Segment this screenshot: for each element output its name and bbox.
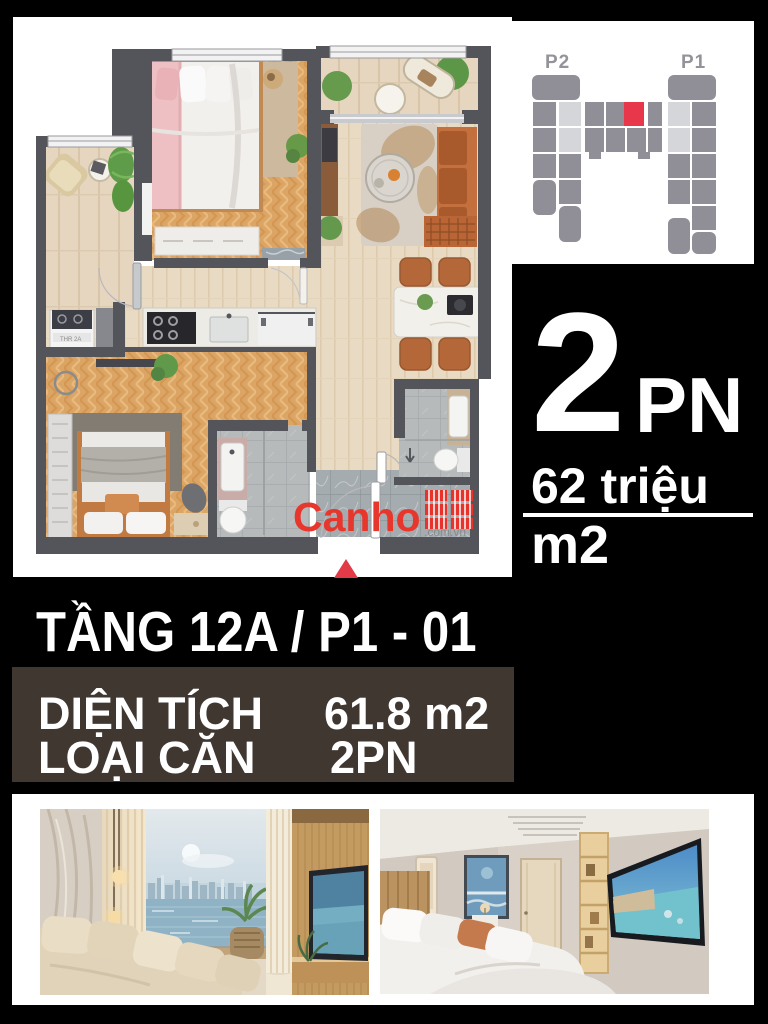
svg-text:Canho: Canho — [293, 494, 421, 540]
svg-text:THR 2A: THR 2A — [60, 337, 81, 343]
svg-text:P2: P2 — [545, 52, 570, 73]
svg-text:P1: P1 — [681, 52, 706, 73]
svg-text:.com.vn: .com.vn — [424, 525, 466, 539]
